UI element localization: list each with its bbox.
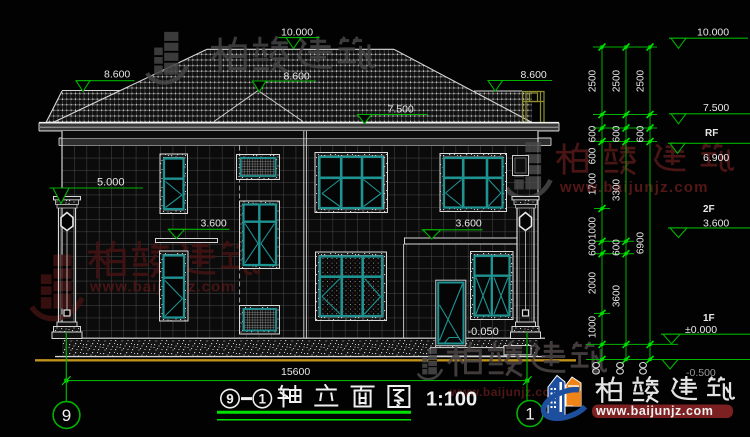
svg-text:9: 9	[226, 391, 234, 406]
svg-text:3.600: 3.600	[703, 218, 729, 230]
svg-text:6900: 6900	[636, 231, 647, 254]
svg-text:2000: 2000	[588, 271, 599, 294]
svg-text:8.600: 8.600	[284, 71, 310, 83]
svg-text:www.baijunjz.com: www.baijunjz.com	[595, 404, 713, 418]
svg-text:2F: 2F	[703, 204, 715, 215]
svg-text:3.600: 3.600	[201, 218, 227, 230]
svg-text:1700: 1700	[588, 172, 599, 195]
svg-text:1000: 1000	[588, 216, 599, 239]
svg-text:1: 1	[525, 405, 534, 424]
svg-text:6.900: 6.900	[703, 152, 729, 164]
svg-text:1F: 1F	[703, 313, 715, 324]
svg-text:600: 600	[636, 125, 647, 142]
svg-text:3.600: 3.600	[456, 218, 482, 230]
svg-text:±0.000: ±0.000	[685, 324, 717, 336]
svg-text:8.600: 8.600	[521, 69, 547, 81]
svg-text:10.000: 10.000	[697, 27, 729, 39]
svg-text:5.000: 5.000	[97, 177, 125, 189]
svg-text:RF: RF	[705, 128, 718, 139]
svg-text:9: 9	[62, 406, 71, 425]
svg-text:2500: 2500	[636, 69, 647, 92]
svg-text:10.000: 10.000	[281, 27, 313, 39]
svg-text:www.baijunjz.com: www.baijunjz.com	[559, 179, 709, 196]
svg-text:8.600: 8.600	[104, 69, 130, 81]
svg-text:600: 600	[612, 239, 623, 256]
svg-text:2500: 2500	[588, 69, 599, 92]
svg-text:7.500: 7.500	[388, 104, 414, 116]
svg-text:15600: 15600	[281, 366, 310, 378]
svg-text:3300: 3300	[612, 178, 623, 201]
svg-text:2500: 2500	[612, 69, 623, 92]
svg-text:600: 600	[588, 125, 599, 142]
svg-text:600: 600	[588, 147, 599, 164]
svg-text:1: 1	[259, 391, 267, 406]
svg-text:1:100: 1:100	[426, 389, 477, 411]
svg-text:-0.050: -0.050	[468, 326, 499, 338]
svg-text:1000: 1000	[588, 315, 599, 338]
svg-text:600: 600	[612, 125, 623, 142]
svg-text:7.500: 7.500	[703, 102, 729, 114]
svg-text:600: 600	[588, 239, 599, 256]
svg-text:3600: 3600	[612, 284, 623, 307]
